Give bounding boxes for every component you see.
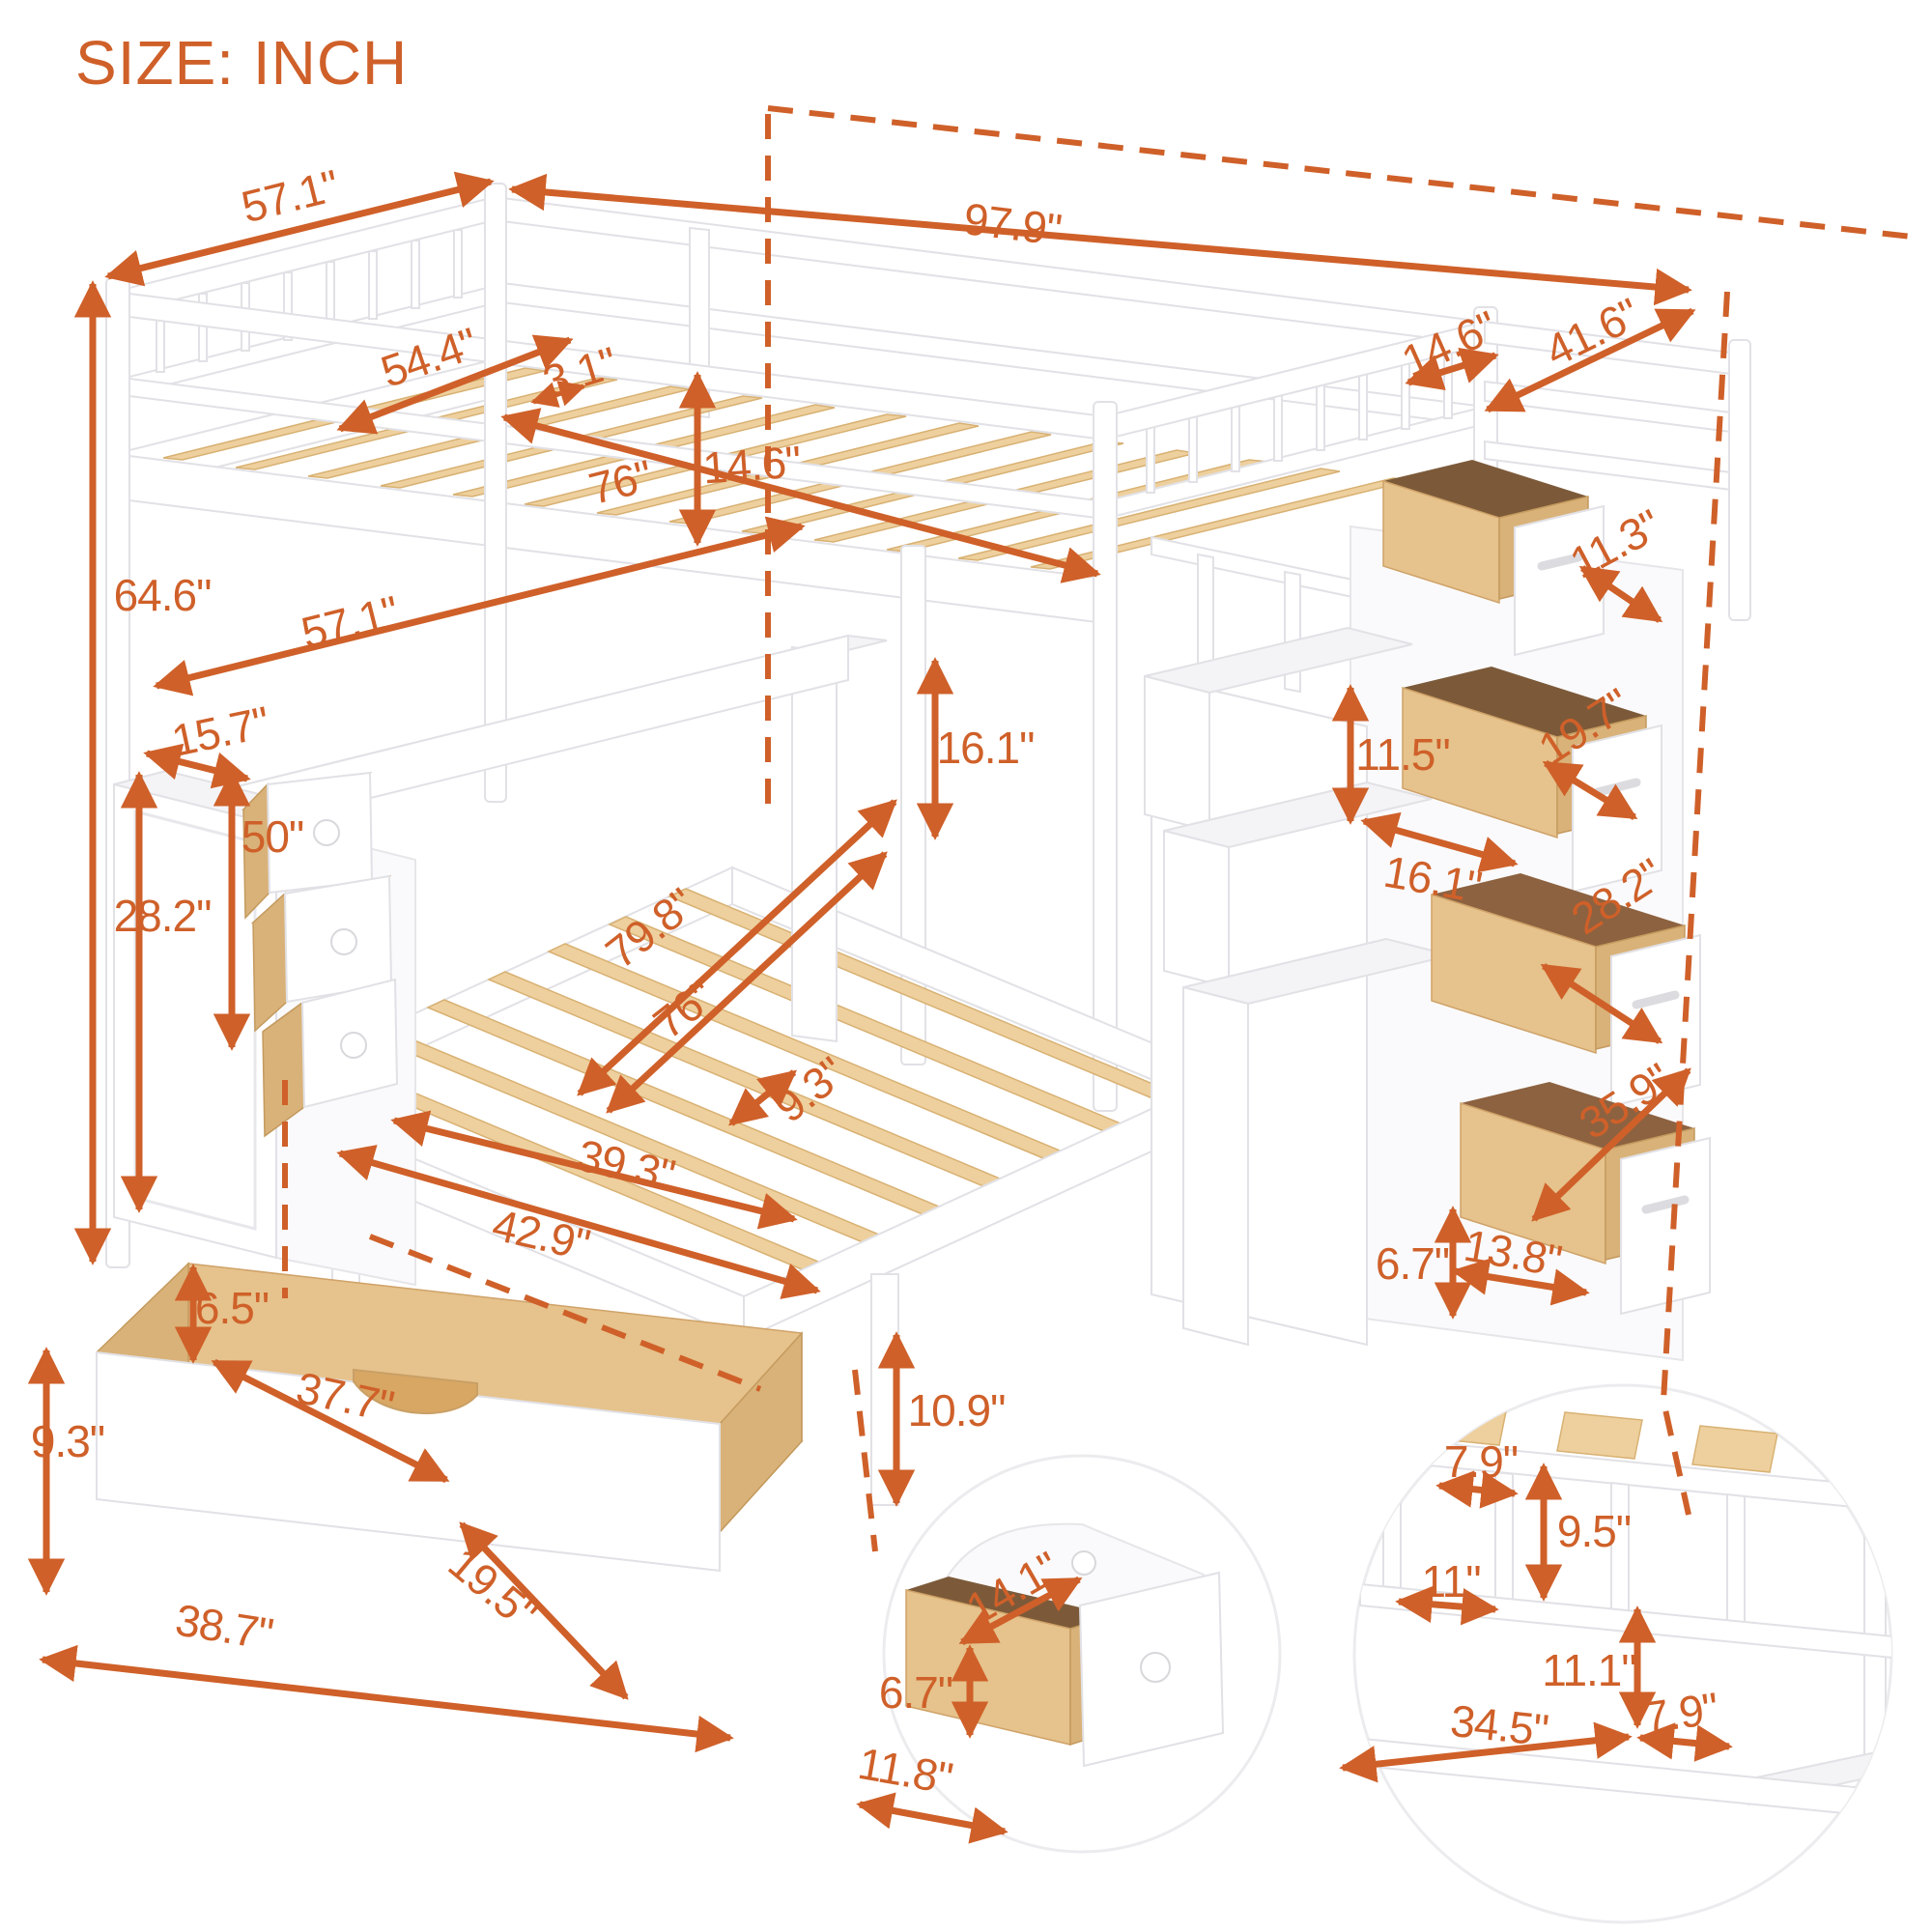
dim-step-riser-height: 11.5" [1355, 728, 1449, 781]
dim-storage-drawer-inner-height: 6.5" [195, 1282, 269, 1334]
page-title: SIZE: INCH [75, 27, 408, 99]
dim-storage-drawer-height: 9.3" [31, 1415, 104, 1467]
dim-cubby-width: 11" [1421, 1555, 1480, 1607]
dim-hutch-clearance: 11.1" [1542, 1644, 1635, 1696]
dim-desk-surface-depth: 7.9" [1640, 1682, 1720, 1744]
dim-cubby-height: 9.5" [1557, 1505, 1631, 1557]
dim-stair-drawer-front-height: 6.7" [1376, 1237, 1449, 1290]
dim-leg-height: 10.9" [908, 1384, 1006, 1436]
dim-cubby-divider-gap: 7.9" [1444, 1435, 1518, 1488]
dim-cabinet-height: 28.2" [114, 890, 212, 942]
dim-under-bed-clearance: 50" [241, 810, 304, 863]
bunk-bed-diagram [0, 0, 1932, 1932]
dim-lower-guard-height: 16.1" [937, 722, 1035, 774]
dim-step-drawer-height: 6.7" [879, 1666, 952, 1719]
dim-total-height: 64.6" [114, 569, 212, 621]
dimension-diagram-page: SIZE: INCH 57.1" 97.9" 14.6" 41.6" 54.4"… [0, 0, 1932, 1932]
dim-desk-surface-length: 34.5" [1448, 1694, 1550, 1756]
dim-upper-guard-height: 14.6" [701, 436, 802, 495]
